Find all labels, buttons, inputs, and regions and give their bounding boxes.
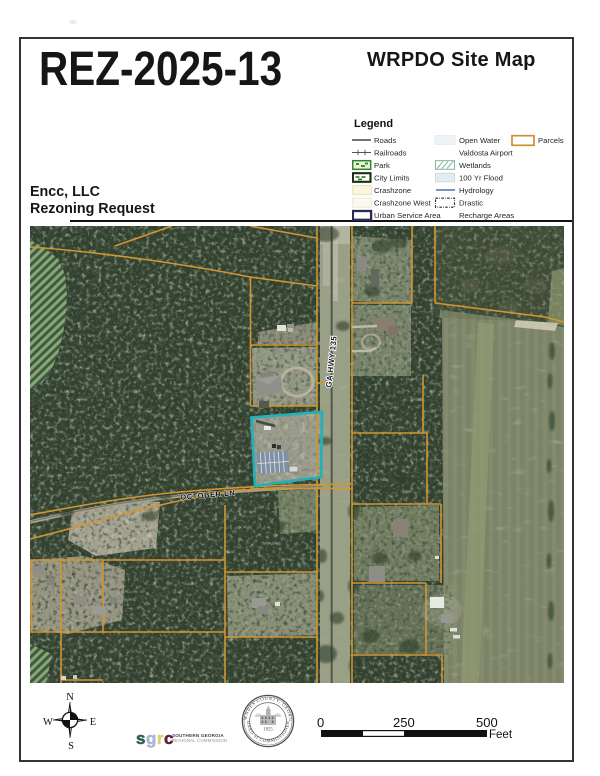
- svg-text:Hydrology: Hydrology: [459, 186, 494, 195]
- svg-text:100 Yr Flood: 100 Yr Flood: [459, 173, 503, 182]
- svg-text:Railroads: Railroads: [374, 148, 407, 157]
- svg-text:Feet: Feet: [489, 729, 513, 741]
- svg-text:0: 0: [317, 715, 324, 730]
- svg-text:Parcels: Parcels: [538, 136, 564, 145]
- svg-text:500: 500: [476, 715, 498, 730]
- svg-text:Roads: Roads: [374, 136, 396, 145]
- svg-text:Crashzone West: Crashzone West: [374, 198, 432, 207]
- svg-text:W: W: [43, 717, 53, 728]
- svg-text:N: N: [66, 692, 74, 703]
- svg-text:Valdosta Airport: Valdosta Airport: [459, 148, 514, 157]
- svg-text:Recharge Areas: Recharge Areas: [459, 211, 514, 220]
- svg-text:S: S: [68, 741, 74, 752]
- svg-text:City Limits: City Limits: [374, 173, 410, 182]
- svg-text:Urban Service Area: Urban Service Area: [374, 211, 441, 220]
- svg-text:250: 250: [393, 715, 415, 730]
- svg-text:Wetlands: Wetlands: [459, 161, 491, 170]
- svg-text:Crashzone: Crashzone: [374, 186, 411, 195]
- svg-text:Drastic: Drastic: [459, 198, 483, 207]
- svg-text:1825: 1825: [263, 728, 273, 733]
- svg-text:E: E: [90, 717, 96, 728]
- svg-text:Open Water: Open Water: [459, 136, 501, 145]
- svg-text:Park: Park: [374, 161, 390, 170]
